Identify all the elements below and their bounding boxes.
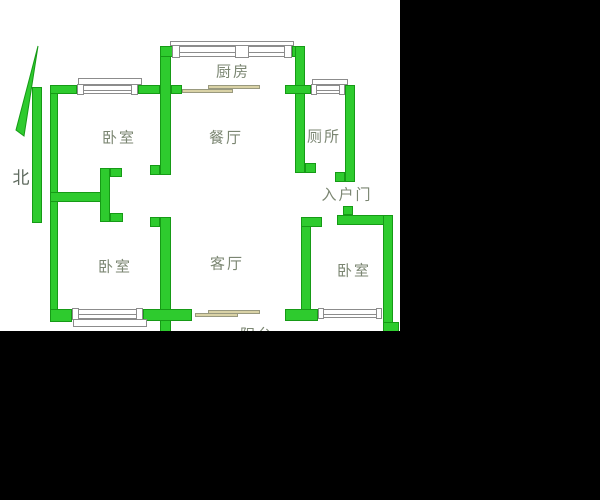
window-toilet-tab-left [311, 84, 317, 95]
window-bed1 [77, 85, 138, 94]
wall-toilet-right [345, 85, 355, 182]
wall-bedrooms-divider-v [100, 168, 110, 222]
wall-center-top-foot [150, 165, 160, 175]
wall-center-top [160, 46, 171, 175]
wall-bed3-left [301, 217, 311, 320]
floor-plan: 北 卧室 餐厅 [0, 0, 400, 331]
compass-north-label: 北 [13, 164, 30, 189]
wall-bottom-mid [143, 309, 192, 321]
window-bed2-tab-right [136, 308, 143, 320]
window-bed2 [72, 309, 143, 319]
wall-kitchen-right [295, 46, 305, 173]
balcony-sliding-door-b [195, 313, 238, 317]
wall-bed1-top-b [138, 85, 160, 94]
room-label-bedroom-bottom-right: 卧室 [337, 260, 371, 281]
wall-toilet-top-a [285, 85, 311, 94]
wall-bottom-bed3 [285, 309, 318, 321]
wall-center-bottom-foot [150, 217, 160, 227]
window-kitchen [172, 46, 292, 57]
wall-entry-notch [343, 206, 353, 215]
wall-divider-foot-top [110, 168, 122, 177]
north-arrow-bar [32, 87, 42, 223]
window-bed1-tab-right [131, 84, 138, 95]
window-kitchen-mullion [235, 45, 249, 58]
wall-divider-foot-bottom [110, 213, 123, 222]
kitchen-sliding-door-b [182, 89, 233, 93]
window-bed1-tab-left [77, 84, 84, 95]
window-bed3-tab-right [376, 308, 382, 319]
room-label-living-room: 客厅 [210, 253, 244, 274]
window-kitchen-tab-right [284, 45, 292, 58]
room-label-toilet: 厕所 [307, 126, 341, 147]
wall-outer-right [383, 215, 393, 331]
wall-kitchen-stub [171, 85, 182, 94]
room-label-dining-room: 餐厅 [209, 127, 243, 148]
window-toilet-tab-right [339, 84, 345, 95]
room-label-balcony: 阳台 [240, 324, 274, 332]
room-label-kitchen: 厨房 [216, 61, 250, 82]
wall-bed3-left-cap [301, 217, 322, 227]
wall-outer-right-foot [383, 322, 399, 331]
wall-toilet-right-foot [335, 172, 345, 182]
window-bed3-tab-left [318, 308, 324, 319]
wall-outer-left [50, 85, 58, 322]
wall-bottom-left-corner [50, 309, 72, 322]
wall-toilet-left-foot [305, 163, 316, 173]
room-label-bedroom-bottom-left: 卧室 [98, 256, 132, 277]
room-label-bedroom-top-left: 卧室 [102, 127, 136, 148]
window-kitchen-tab-left [172, 45, 180, 58]
window-sill-bed2 [73, 319, 147, 327]
room-label-entrance-door: 入户门 [321, 184, 372, 205]
window-bed3 [318, 309, 382, 318]
wall-bed1-top-a [50, 85, 77, 94]
window-bed2-tab-left [72, 308, 79, 320]
